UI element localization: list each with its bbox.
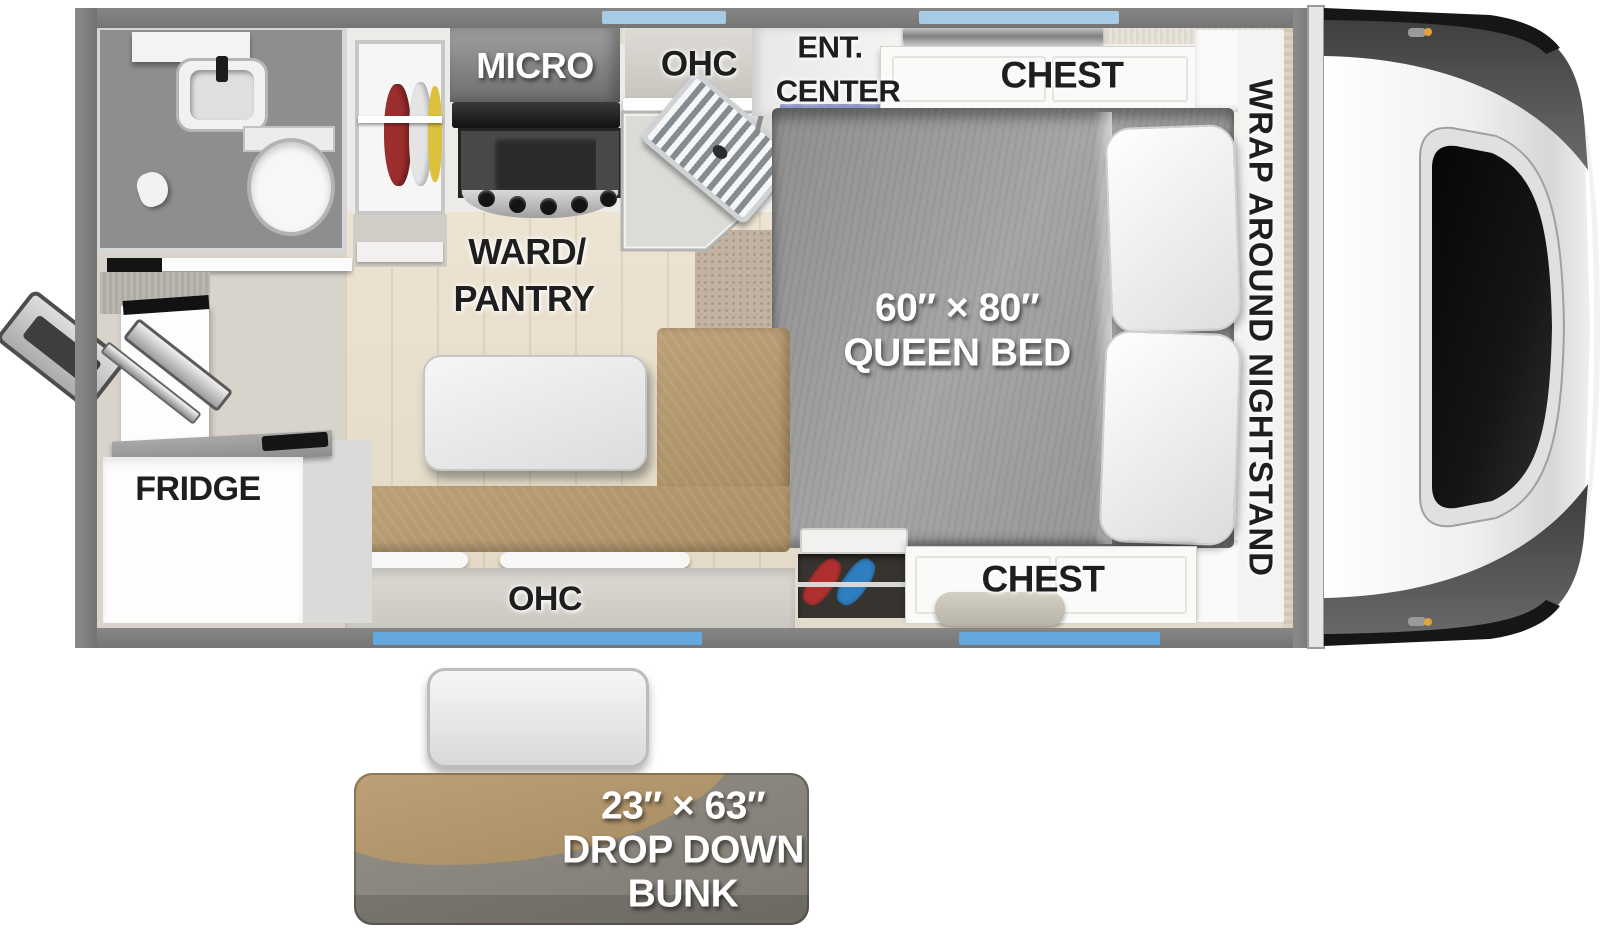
dinette-table [423,355,647,471]
stove-knob-1 [478,190,495,207]
stove-knob-5 [600,190,617,207]
pillow-bottom [1098,330,1241,547]
range-hood [452,102,620,128]
dinette-bench-seat [357,486,790,552]
front-wall-trim [1283,28,1293,628]
label-bunk-size: 23″ × 63″ [601,787,765,826]
stowed-table [427,668,649,768]
wall-left [75,8,97,648]
bunk-base-shadow [354,895,809,925]
oven-window [492,136,596,190]
label-bunk-line2: DROP DOWN [562,831,804,870]
utility-cubby-lid [800,528,908,554]
stove-knob-3 [540,198,557,215]
stove-knob-2 [509,196,526,213]
label-queen-size: 60″ × 80″ [875,289,1039,328]
truck-cab [1300,0,1600,655]
label-queen-name: QUEEN BED [843,334,1070,373]
dinette-bench-back [657,328,790,490]
cab-left-edge [1308,6,1324,648]
label-ent-line1: ENT. [797,32,862,63]
bench-trim-right [500,552,690,568]
label-ent-line2: CENTER [776,76,900,107]
clothes-yellow [428,86,442,182]
ward-base-face [357,242,443,262]
label-bunk-line3: BUNK [628,875,739,914]
cab-marker-top [1408,28,1426,37]
label-wrap-around-nightstand: WRAP AROUND NIGHTSTAND [1245,79,1278,577]
label-chest-top: CHEST [1001,57,1124,94]
window-top-1 [602,11,726,24]
cab-marker-light-top-icon [1424,28,1432,36]
fridge-side [302,440,372,623]
bathroom-faucet-icon [216,56,228,82]
toilet-bowl [247,138,335,236]
window-bottom-1 [373,632,702,645]
label-micro: MICRO [476,48,594,84]
stove-knob-4 [571,196,588,213]
pillow-top [1104,124,1241,334]
label-chest-bottom: CHEST [982,561,1105,598]
label-ward-line2: PANTRY [454,281,595,317]
label-ward-line1: WARD/ [468,234,586,270]
floorplan-canvas: MICRO OHC ENT. CENTER CHEST WRAP AROUND … [0,0,1600,938]
clothes-red [384,84,411,186]
cab-marker-bottom [1408,617,1426,626]
windshield-glass [1432,146,1552,509]
label-ohc-bottom: OHC [508,582,582,616]
window-top-2 [919,11,1119,24]
utility-shelf [798,582,910,587]
window-bottom-2 [959,632,1160,645]
bathroom-door-track-dark [107,258,162,272]
bathroom-door-track-white [162,258,352,271]
label-ohc-top: OHC [661,47,737,82]
closet-rod [358,116,442,123]
label-fridge: FRIDGE [135,472,260,506]
cab-marker-light-bottom-icon [1424,618,1432,626]
